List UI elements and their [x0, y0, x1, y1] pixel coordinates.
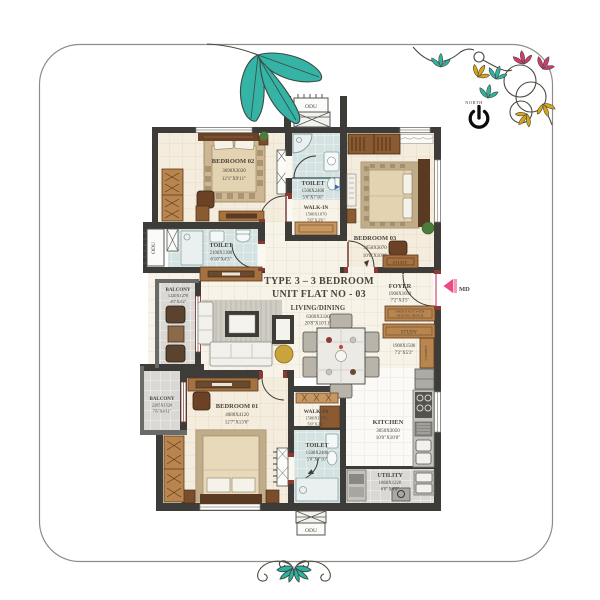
- svg-text:STUDY: STUDY: [401, 331, 418, 336]
- svg-text:1500X1070: 1500X1070: [305, 212, 327, 217]
- svg-text:7'6"X4'11": 7'6"X4'11": [153, 409, 172, 414]
- svg-text:TOILET: TOILET: [306, 443, 329, 449]
- svg-text:MD: MD: [459, 286, 470, 293]
- svg-text:12'7"X13'6": 12'7"X13'6": [225, 421, 250, 426]
- svg-text:1900X1050: 1900X1050: [389, 292, 412, 297]
- svg-text:BEDROOM 03: BEDROOM 03: [354, 235, 397, 242]
- svg-text:WALK-IN: WALK-IN: [304, 409, 329, 415]
- svg-text:SEATING BENCH: SEATING BENCH: [397, 314, 424, 318]
- svg-text:KITCHEN: KITCHEN: [373, 419, 404, 426]
- svg-text:1500X1070: 1500X1070: [305, 416, 327, 421]
- svg-text:NORTH: NORTH: [465, 100, 483, 105]
- svg-text:5'0"X7'10": 5'0"X7'10": [302, 196, 323, 201]
- svg-text:LIVING/DINING: LIVING/DINING: [291, 305, 346, 312]
- svg-text:TYPE 3 – 3 BEDROOM: TYPE 3 – 3 BEDROOM: [264, 276, 374, 287]
- svg-text:UTILITY: UTILITY: [377, 473, 403, 479]
- svg-text:4'0"X4'2": 4'0"X4'2": [170, 299, 187, 304]
- svg-text:3690X3030: 3690X3030: [222, 169, 246, 174]
- svg-text:3050X3050: 3050X3050: [376, 429, 400, 434]
- svg-text:6300X3330: 6300X3330: [306, 315, 330, 320]
- svg-text:3050X3070: 3050X3070: [363, 246, 387, 251]
- svg-text:7'2"X5'2": 7'2"X5'2": [395, 351, 414, 356]
- svg-text:TOILET: TOILET: [302, 181, 325, 187]
- svg-text:6'10"X4'3": 6'10"X4'3": [210, 258, 231, 263]
- svg-text:5'0"X3'6": 5'0"X3'6": [307, 218, 325, 223]
- svg-text:TOILET: TOILET: [210, 243, 233, 249]
- svg-text:WALK-IN: WALK-IN: [304, 205, 329, 211]
- svg-text:STUDY: STUDY: [392, 260, 408, 265]
- svg-text:BEDROOM 02: BEDROOM 02: [212, 158, 254, 165]
- svg-text:1500X2400: 1500X2400: [306, 451, 329, 456]
- svg-text:2205X1520: 2205X1520: [152, 403, 172, 408]
- svg-text:ODU: ODU: [305, 104, 317, 110]
- svg-text:10'0"X10'1": 10'0"X10'1": [363, 254, 388, 259]
- svg-text:10'0"X10'0": 10'0"X10'0": [376, 436, 401, 441]
- svg-text:12'1"X9'11": 12'1"X9'11": [222, 177, 246, 182]
- svg-text:5'0"X3'6": 5'0"X3'6": [307, 422, 325, 427]
- svg-text:BALCONY: BALCONY: [149, 397, 174, 402]
- svg-text:1500X2400: 1500X2400: [302, 189, 325, 194]
- svg-text:BEDROOM 01: BEDROOM 01: [216, 403, 258, 410]
- svg-text:4080X4120: 4080X4120: [225, 413, 249, 418]
- svg-text:1860X1220: 1860X1220: [379, 481, 402, 486]
- svg-text:20'8"X10'11": 20'8"X10'11": [305, 322, 332, 327]
- svg-text:UNIT FLAT NO - 03: UNIT FLAT NO - 03: [272, 289, 366, 300]
- svg-text:7'2"X3'5": 7'2"X3'5": [391, 299, 410, 304]
- svg-text:2100X1300: 2100X1300: [210, 251, 233, 256]
- svg-text:1900X1500: 1900X1500: [393, 344, 416, 349]
- svg-text:ODU: ODU: [305, 528, 317, 534]
- svg-text:6'0"X4'0": 6'0"X4'0": [381, 488, 400, 493]
- svg-text:ODU: ODU: [151, 242, 157, 254]
- svg-text:5'0"X7'10": 5'0"X7'10": [306, 458, 327, 463]
- svg-text:1220X1270: 1220X1270: [168, 293, 188, 298]
- svg-text:FOYER: FOYER: [389, 283, 412, 290]
- svg-text:CABINET: CABINET: [424, 345, 428, 361]
